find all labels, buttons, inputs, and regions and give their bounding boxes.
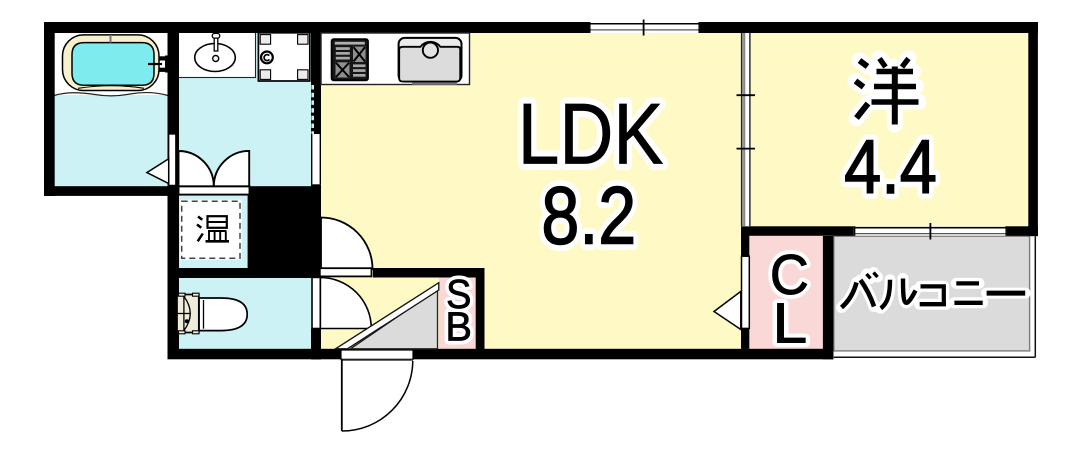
svg-text:L: L	[772, 291, 807, 355]
svg-text:4.4: 4.4	[844, 125, 937, 210]
svg-text:B: B	[445, 304, 472, 349]
svg-text:8.2: 8.2	[541, 170, 636, 261]
svg-text:LDK: LDK	[518, 86, 664, 182]
